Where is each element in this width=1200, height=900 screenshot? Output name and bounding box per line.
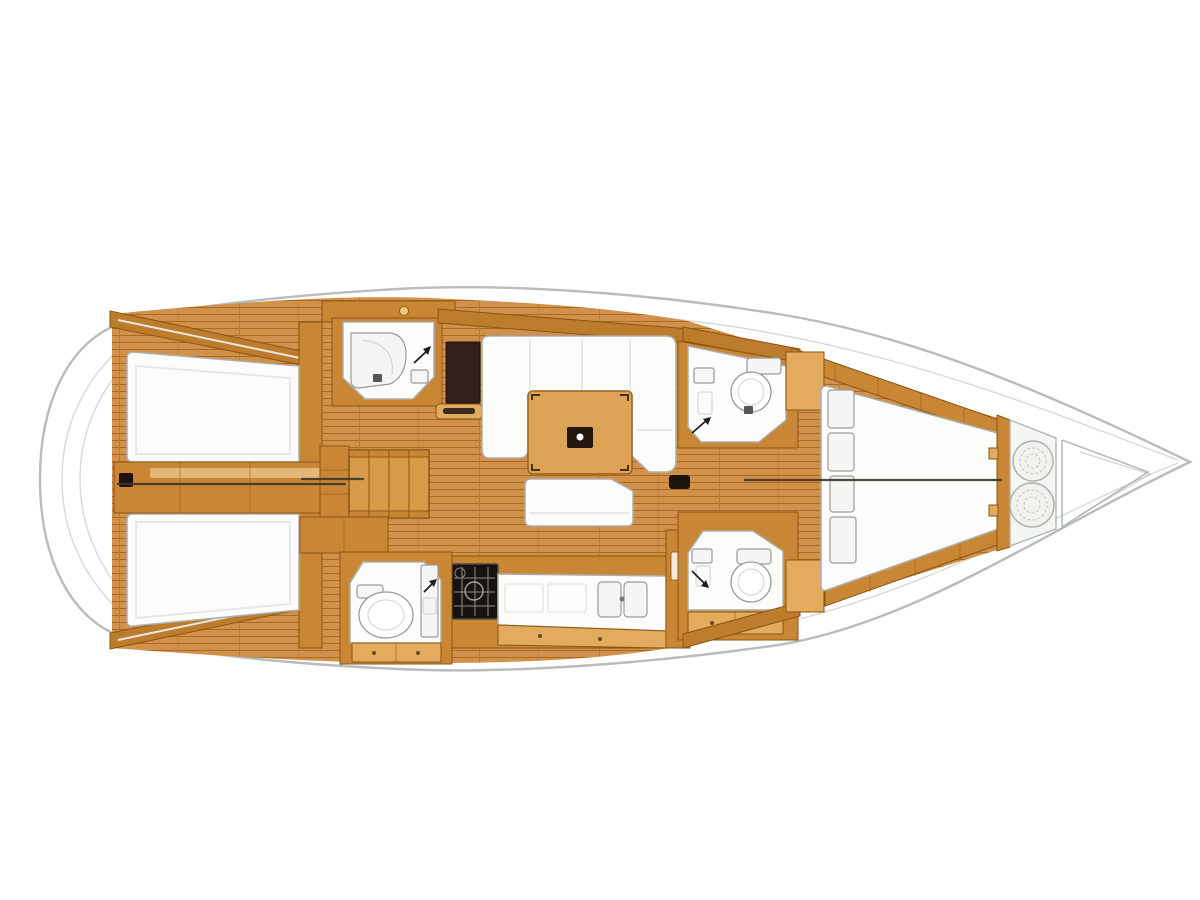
galley-knob-2 xyxy=(598,637,602,641)
berth-shelf-step-3 xyxy=(830,476,854,512)
yacht-floorplan-diagram xyxy=(0,0,1200,900)
toilet-bowl-fwd-starboard xyxy=(731,562,771,602)
shower-drain-icon xyxy=(373,374,382,382)
berth-shelf-step-4 xyxy=(830,517,856,563)
galley-sink-left xyxy=(598,582,621,617)
shower-drain-icon xyxy=(744,406,753,414)
engine-beam-panel xyxy=(150,468,335,478)
rope-coil-icon xyxy=(1013,441,1053,481)
aft-port-berth xyxy=(127,352,299,462)
nav-seat-slot xyxy=(443,408,475,414)
fwd-bulkhead xyxy=(997,415,1010,551)
bulkhead-tab-1 xyxy=(989,448,998,459)
aft-head-port xyxy=(332,318,442,406)
drawer-knob-1 xyxy=(710,621,714,625)
berth-shelf-step-1 xyxy=(828,390,854,428)
drawer-knob-2 xyxy=(416,651,420,655)
berth-shelf-step-2 xyxy=(828,433,854,471)
faucet-icon xyxy=(620,597,625,602)
floorplan-svg xyxy=(0,0,1200,900)
mast-post-dot-icon xyxy=(577,434,584,441)
aft-head-drawers xyxy=(352,643,441,662)
fwd-head-port-sink xyxy=(694,368,714,383)
fwd-cabin-cabinet-bottom xyxy=(786,560,824,612)
salon-center-bench xyxy=(525,479,633,526)
salon-floor-hatch xyxy=(669,475,690,489)
toilet-bowl-aft xyxy=(359,592,413,638)
galley-knob-1 xyxy=(538,634,542,638)
aft-head-port-sink xyxy=(411,370,428,383)
drawer-knob-1 xyxy=(372,651,376,655)
forward-head-starboard xyxy=(678,512,800,648)
aft-starboard-berth xyxy=(127,514,299,626)
deck-hatch-knob-icon xyxy=(400,307,409,316)
forward-head-port xyxy=(678,327,800,448)
fwd-head-starboard-sink xyxy=(692,549,712,563)
bulkhead-tab-2 xyxy=(989,505,998,516)
fwd-cabin-cabinet-top xyxy=(786,352,824,410)
companionway-side-cabinet xyxy=(320,446,349,518)
nav-chart-locker xyxy=(446,342,480,403)
galley-sink-right xyxy=(624,582,647,617)
aft-head-starboard xyxy=(340,552,452,664)
